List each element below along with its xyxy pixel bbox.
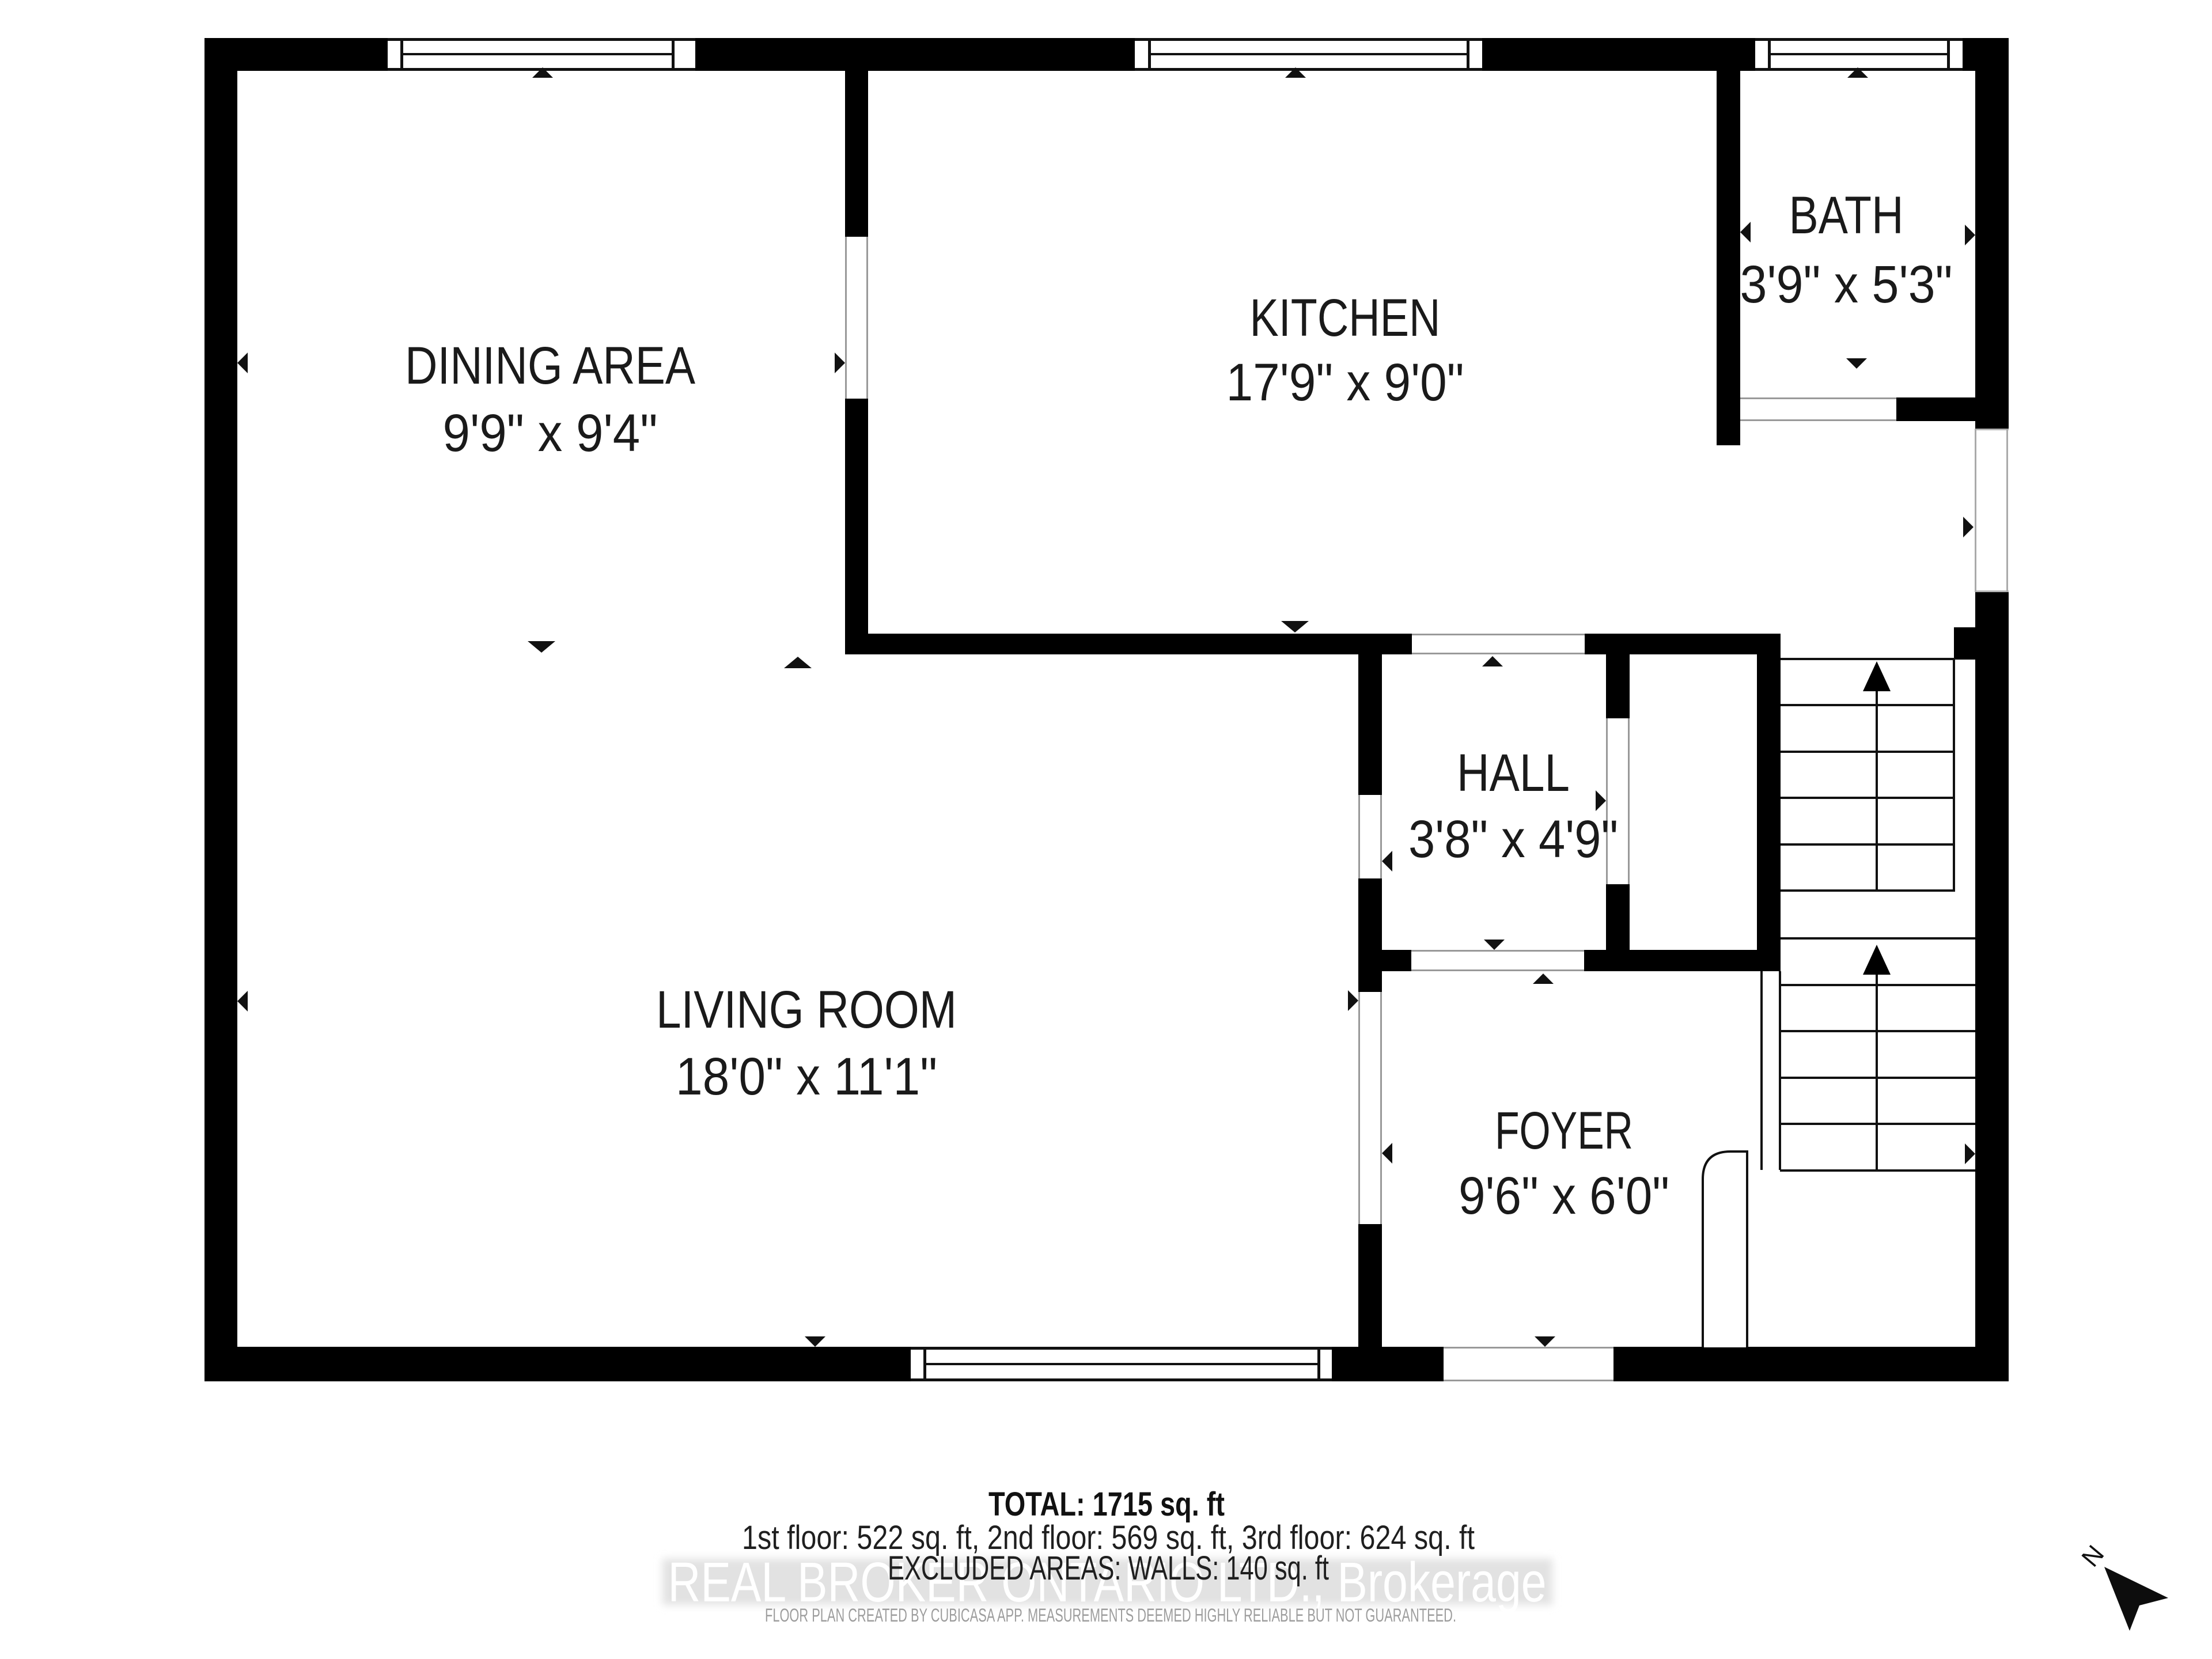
svg-text:FOYER: FOYER	[1495, 1101, 1633, 1160]
svg-text:FLOOR PLAN CREATED BY CUBICASA: FLOOR PLAN CREATED BY CUBICASA APP. MEAS…	[765, 1605, 1456, 1626]
svg-text:TOTAL: 1715 sq. ft: TOTAL: 1715 sq. ft	[988, 1486, 1225, 1523]
svg-text:LIVING ROOM: LIVING ROOM	[656, 980, 957, 1039]
svg-text:9'9" x 9'4": 9'9" x 9'4"	[443, 404, 658, 463]
svg-text:3'8" x 4'9": 3'8" x 4'9"	[1408, 810, 1618, 869]
svg-text:9'6" x 6'0": 9'6" x 6'0"	[1459, 1166, 1669, 1225]
svg-text:DINING AREA: DINING AREA	[405, 336, 696, 395]
svg-text:3'9" x 5'3": 3'9" x 5'3"	[1740, 255, 1953, 314]
svg-text:BATH: BATH	[1789, 186, 1904, 245]
svg-text:EXCLUDED AREAS: WALLS: 140 sq.: EXCLUDED AREAS: WALLS: 140 sq. ft	[888, 1550, 1329, 1587]
svg-text:HALL: HALL	[1457, 744, 1570, 802]
svg-text:17'9" x 9'0": 17'9" x 9'0"	[1226, 353, 1464, 412]
svg-text:18'0" x 11'1": 18'0" x 11'1"	[676, 1047, 937, 1106]
svg-text:KITCHEN: KITCHEN	[1250, 289, 1441, 347]
